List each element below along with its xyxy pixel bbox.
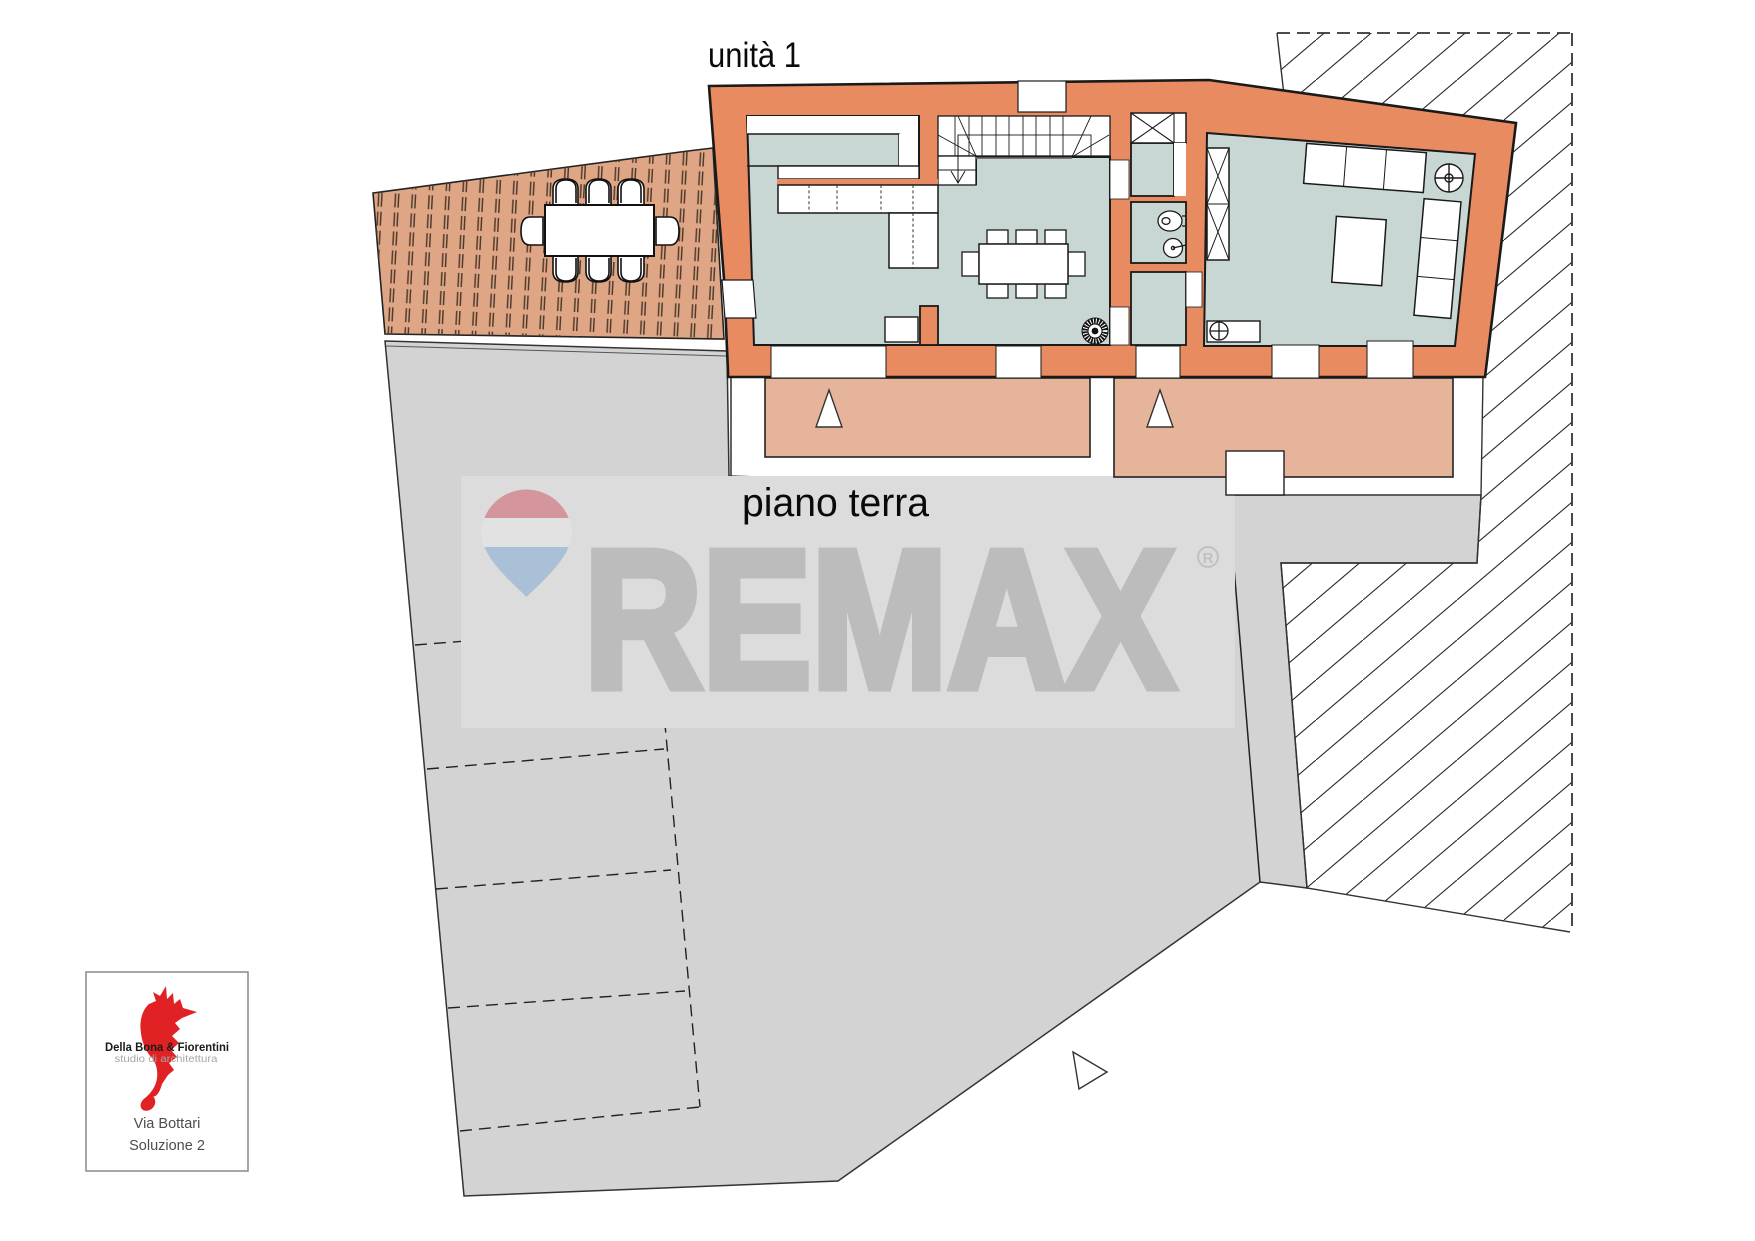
svg-text:Soluzione 2: Soluzione 2 <box>129 1138 205 1154</box>
svg-text:piano terra: piano terra <box>742 481 930 525</box>
svg-text:R: R <box>1203 550 1214 567</box>
svg-text:studio di architettura: studio di architettura <box>115 1053 218 1065</box>
svg-text:unità 1: unità 1 <box>708 36 801 75</box>
svg-text:REMAX: REMAX <box>584 510 1175 729</box>
svg-text:Via Bottari: Via Bottari <box>134 1116 201 1132</box>
